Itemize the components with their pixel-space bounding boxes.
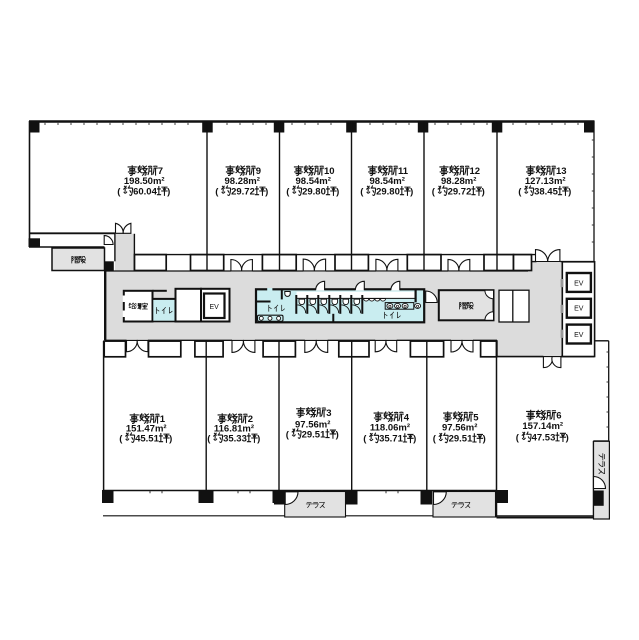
svg-text:38.45: 38.45 xyxy=(534,186,558,197)
svg-text:35.71: 35.71 xyxy=(379,434,403,445)
svg-text:198.50m²: 198.50m² xyxy=(124,176,165,187)
svg-text:47.53: 47.53 xyxy=(532,433,556,444)
svg-text:60.04: 60.04 xyxy=(133,186,157,197)
svg-text:29.72: 29.72 xyxy=(448,186,472,197)
svg-text:(: ( xyxy=(119,433,123,444)
svg-text:97.56m²: 97.56m² xyxy=(442,422,477,433)
svg-text:29.80: 29.80 xyxy=(376,186,400,197)
svg-text:): ) xyxy=(566,433,569,444)
svg-text:): ) xyxy=(483,434,486,445)
svg-text:29.51: 29.51 xyxy=(449,434,473,445)
svg-text:45.51: 45.51 xyxy=(135,433,159,444)
svg-text:): ) xyxy=(167,186,170,197)
svg-text:(: ( xyxy=(363,434,367,445)
svg-text:98.54m²: 98.54m² xyxy=(370,176,405,187)
svg-text:(: ( xyxy=(518,186,522,197)
svg-text:3: 3 xyxy=(326,408,331,419)
svg-text:29.80: 29.80 xyxy=(302,186,326,197)
svg-text:35.33: 35.33 xyxy=(223,433,247,444)
svg-text:): ) xyxy=(169,433,172,444)
svg-text:98.28m²: 98.28m² xyxy=(225,176,260,187)
svg-text:(: ( xyxy=(433,434,437,445)
svg-text:): ) xyxy=(413,434,416,445)
svg-text:): ) xyxy=(568,186,571,197)
svg-text:): ) xyxy=(410,186,413,197)
svg-text:127.13m²: 127.13m² xyxy=(525,176,566,187)
svg-text:): ) xyxy=(336,429,339,440)
svg-text:98.28m²: 98.28m² xyxy=(441,176,476,187)
svg-text:157.14m²: 157.14m² xyxy=(522,421,563,432)
svg-text:(: ( xyxy=(207,433,211,444)
svg-text:(: ( xyxy=(286,186,290,197)
svg-text:(: ( xyxy=(432,186,436,197)
svg-text:(: ( xyxy=(286,429,290,440)
svg-text:): ) xyxy=(336,186,339,197)
svg-text:): ) xyxy=(482,186,485,197)
svg-text:(: ( xyxy=(360,186,364,197)
svg-text:(: ( xyxy=(117,186,121,197)
svg-text:98.54m²: 98.54m² xyxy=(296,176,331,187)
svg-text:EV: EV xyxy=(574,306,584,313)
svg-text:EV: EV xyxy=(574,280,584,287)
svg-text:29.51: 29.51 xyxy=(302,429,326,440)
svg-text:(: ( xyxy=(516,433,520,444)
svg-text:): ) xyxy=(265,186,268,197)
svg-text:118.06m²: 118.06m² xyxy=(370,422,410,433)
svg-text:EV: EV xyxy=(574,332,584,339)
svg-text:EV: EV xyxy=(210,304,220,311)
svg-text:): ) xyxy=(257,433,260,444)
svg-text:(: ( xyxy=(215,186,219,197)
svg-text:29.72: 29.72 xyxy=(231,186,255,197)
